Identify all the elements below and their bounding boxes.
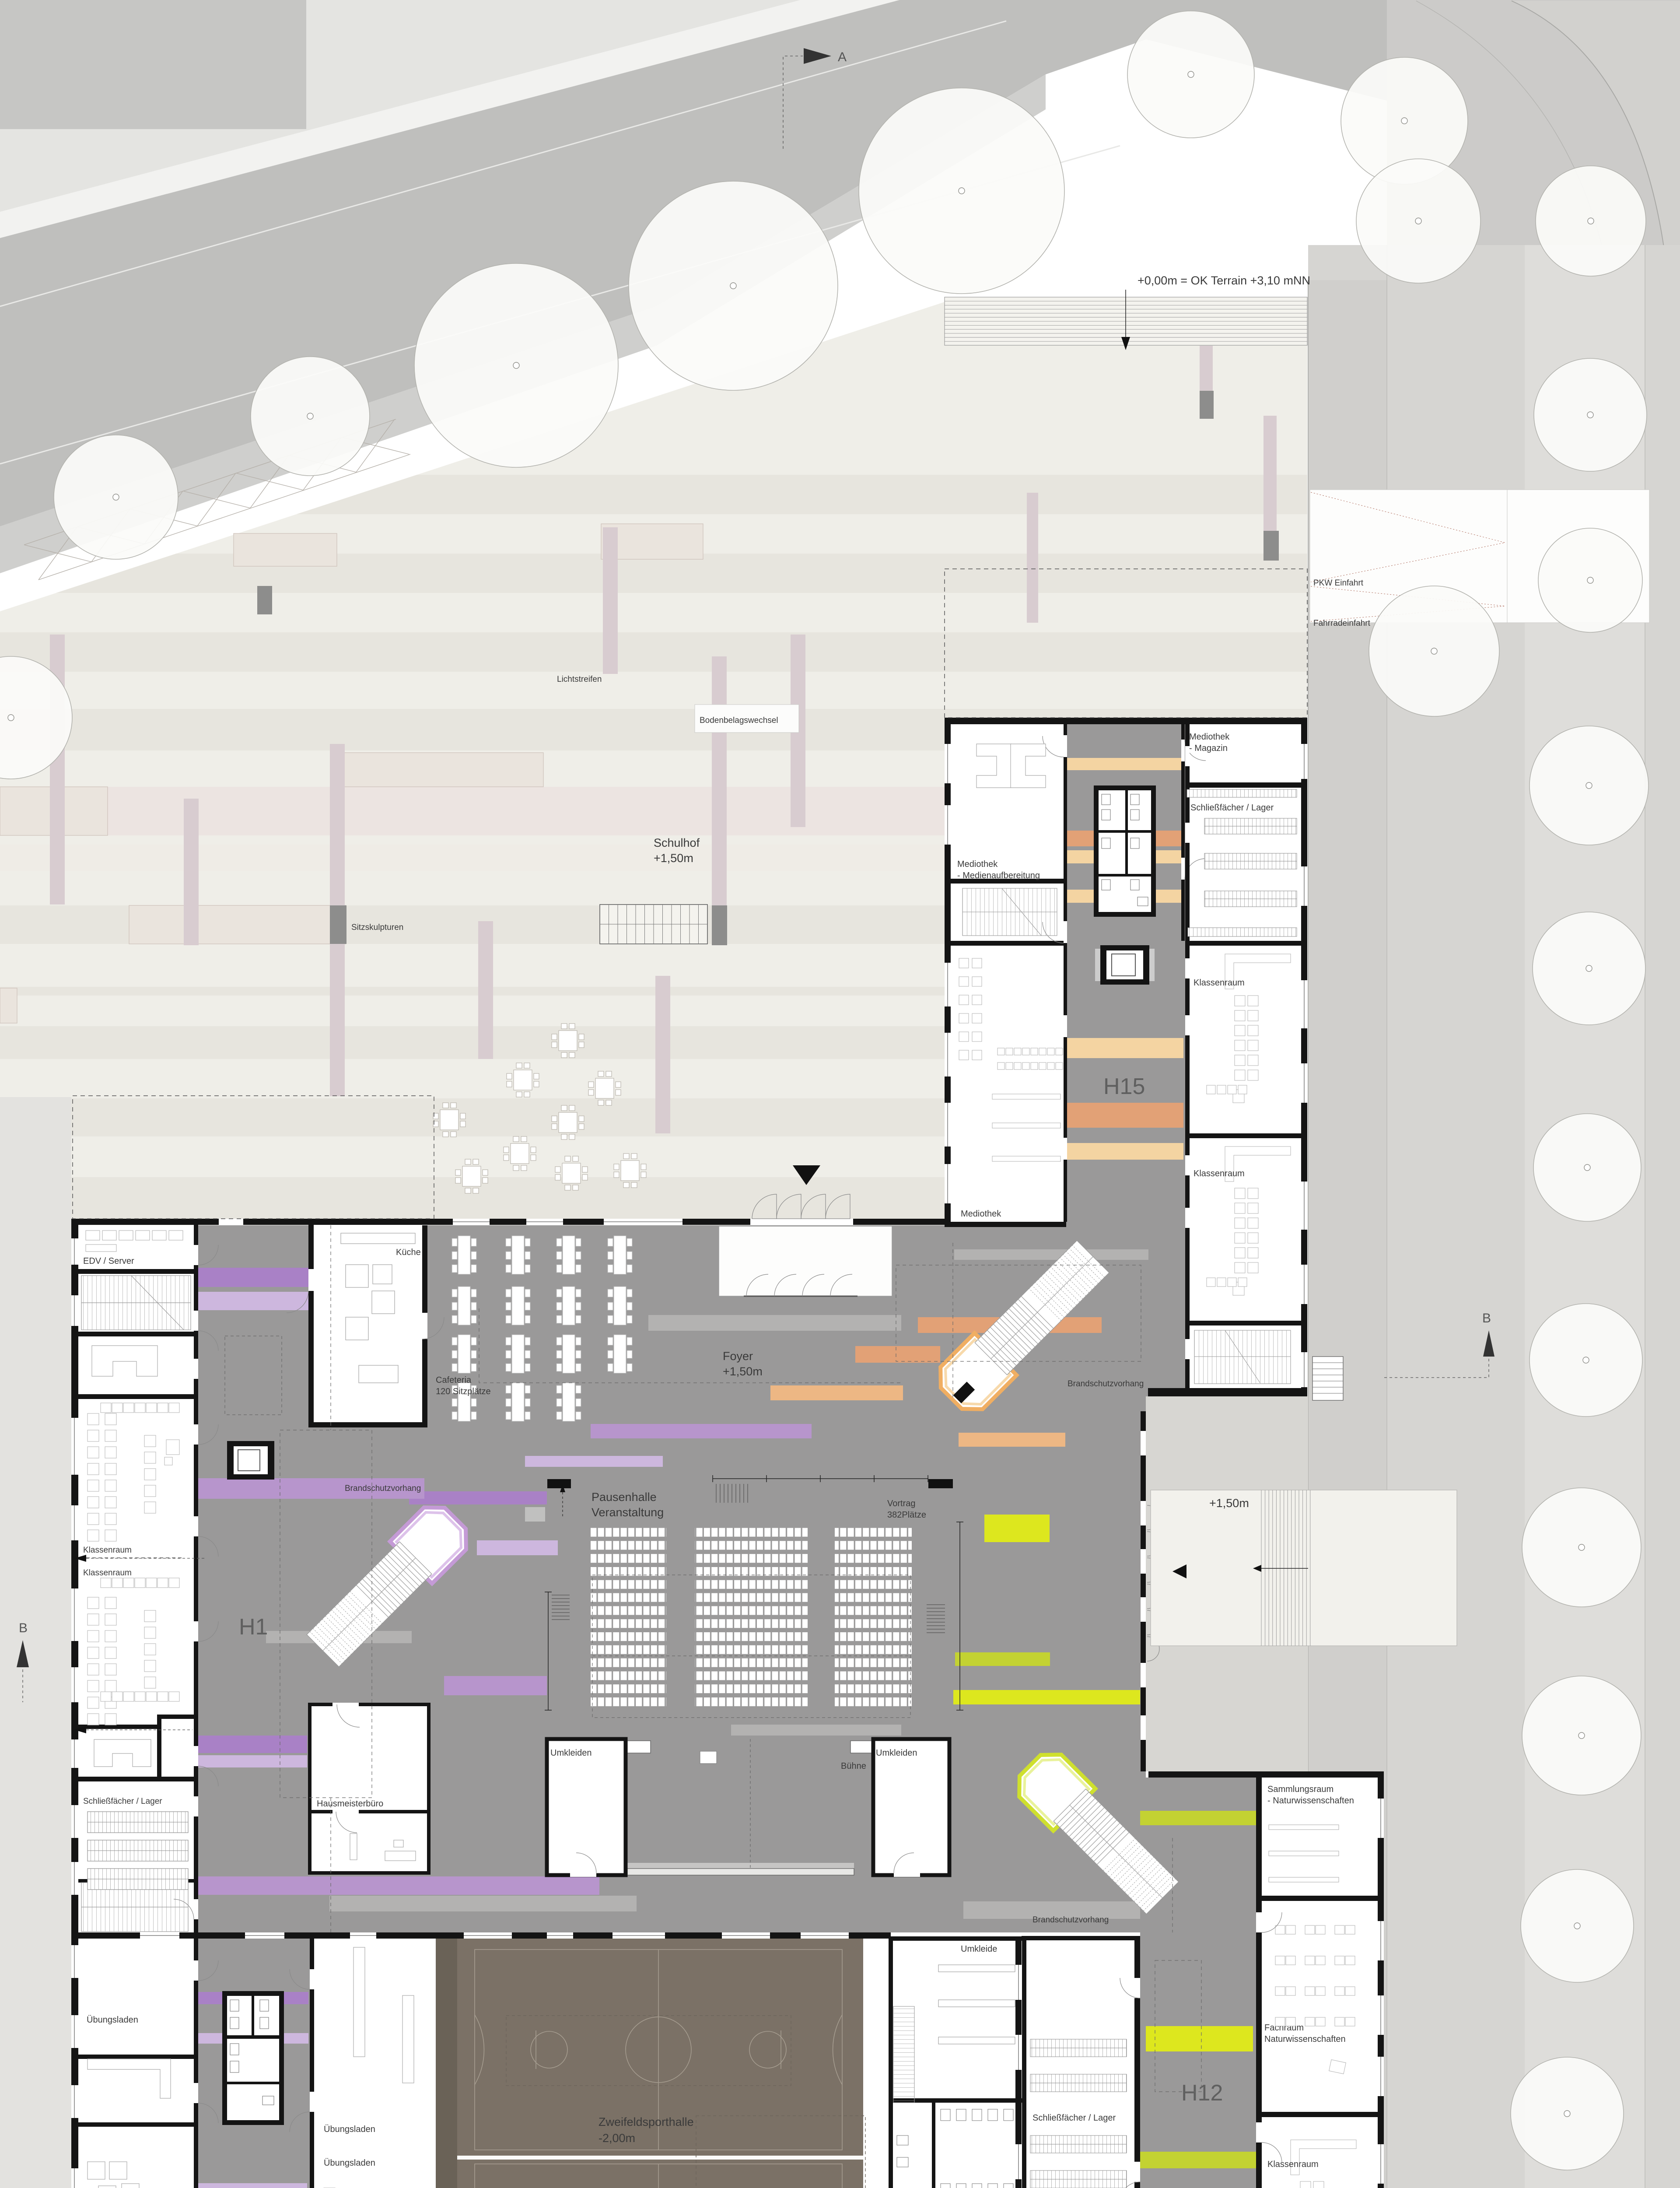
- svg-text:Fahrradeinfahrt: Fahrradeinfahrt: [1313, 619, 1371, 628]
- svg-text:382Plätze: 382Plätze: [887, 1510, 926, 1520]
- svg-text:A: A: [838, 50, 847, 64]
- svg-text:+1,50m: +1,50m: [723, 1365, 763, 1378]
- svg-text:Klassenraum: Klassenraum: [83, 1546, 132, 1555]
- svg-text:EDV / Server: EDV / Server: [83, 1256, 134, 1266]
- svg-text:Umkleide: Umkleide: [961, 1944, 997, 1954]
- svg-text:Bodenbelagswechsel: Bodenbelagswechsel: [700, 716, 778, 725]
- svg-text:Umkleiden: Umkleiden: [550, 1748, 591, 1758]
- svg-text:Schließfächer / Lager: Schließfächer / Lager: [83, 1797, 162, 1806]
- svg-text:Klassenraum: Klassenraum: [1267, 2160, 1319, 2169]
- svg-text:Küche: Küche: [396, 1248, 421, 1257]
- svg-text:H12: H12: [1181, 2080, 1223, 2106]
- svg-text:+1,50m: +1,50m: [1209, 1497, 1249, 1510]
- svg-text:Pausenhalle: Pausenhalle: [591, 1490, 657, 1504]
- svg-text:B: B: [1482, 1311, 1491, 1325]
- svg-text:Klassenraum: Klassenraum: [1193, 1169, 1245, 1178]
- svg-text:Schließfächer / Lager: Schließfächer / Lager: [1032, 2113, 1116, 2123]
- svg-text:-2,00m: -2,00m: [598, 2132, 635, 2145]
- svg-text:- Medienaufbereitung: - Medienaufbereitung: [957, 871, 1040, 880]
- svg-text:120 Sitzplätze: 120 Sitzplätze: [436, 1387, 491, 1396]
- svg-text:Lichtstreifen: Lichtstreifen: [557, 675, 602, 684]
- svg-text:Mediothek: Mediothek: [961, 1209, 1001, 1219]
- svg-text:Naturwissenschaften: Naturwissenschaften: [1264, 2034, 1346, 2044]
- svg-text:H15: H15: [1103, 1074, 1145, 1099]
- svg-text:Vortrag: Vortrag: [887, 1499, 915, 1508]
- svg-text:B: B: [19, 1621, 28, 1635]
- svg-text:+0,00m = OK Terrain +3,10 mNN: +0,00m = OK Terrain +3,10 mNN: [1137, 274, 1310, 287]
- svg-text:Sammlungsraum: Sammlungsraum: [1267, 1785, 1333, 1794]
- svg-text:Hausmeisterbüro: Hausmeisterbüro: [317, 1799, 383, 1809]
- svg-text:Mediothek: Mediothek: [1189, 732, 1230, 742]
- svg-text:Klassenraum: Klassenraum: [1193, 978, 1245, 988]
- svg-text:Cafeteria: Cafeteria: [436, 1375, 472, 1385]
- svg-text:Sitzskulpturen: Sitzskulpturen: [351, 923, 403, 932]
- svg-text:Klassenraum: Klassenraum: [83, 1568, 132, 1578]
- svg-text:+1,50m: +1,50m: [654, 852, 693, 865]
- svg-text:- Magazin: - Magazin: [1189, 743, 1228, 753]
- svg-text:Veranstaltung: Veranstaltung: [591, 1506, 664, 1519]
- svg-text:Zweifeldsporthalle: Zweifeldsporthalle: [598, 2115, 694, 2128]
- svg-text:Bühne: Bühne: [841, 1761, 866, 1771]
- svg-text:- Naturwissenschaften: - Naturwissenschaften: [1267, 1796, 1354, 1806]
- svg-text:Brandschutzvorhang: Brandschutzvorhang: [1032, 1915, 1109, 1925]
- svg-text:Brandschutzvorhang: Brandschutzvorhang: [1067, 1379, 1144, 1389]
- svg-text:Übungsladen: Übungsladen: [324, 2158, 375, 2168]
- svg-text:Foyer: Foyer: [723, 1350, 753, 1363]
- svg-text:Brandschutzvorhang: Brandschutzvorhang: [345, 1484, 421, 1493]
- svg-text:PKW Einfahrt: PKW Einfahrt: [1313, 579, 1364, 588]
- svg-text:Schulhof: Schulhof: [654, 836, 700, 849]
- svg-text:Mediothek: Mediothek: [957, 859, 998, 869]
- svg-text:Übungsladen: Übungsladen: [324, 2125, 375, 2134]
- svg-text:Schließfächer / Lager: Schließfächer / Lager: [1190, 803, 1274, 813]
- svg-text:Übungsladen: Übungsladen: [87, 2015, 138, 2025]
- svg-text:H1: H1: [239, 1614, 268, 1640]
- svg-text:Umkleiden: Umkleiden: [876, 1748, 917, 1758]
